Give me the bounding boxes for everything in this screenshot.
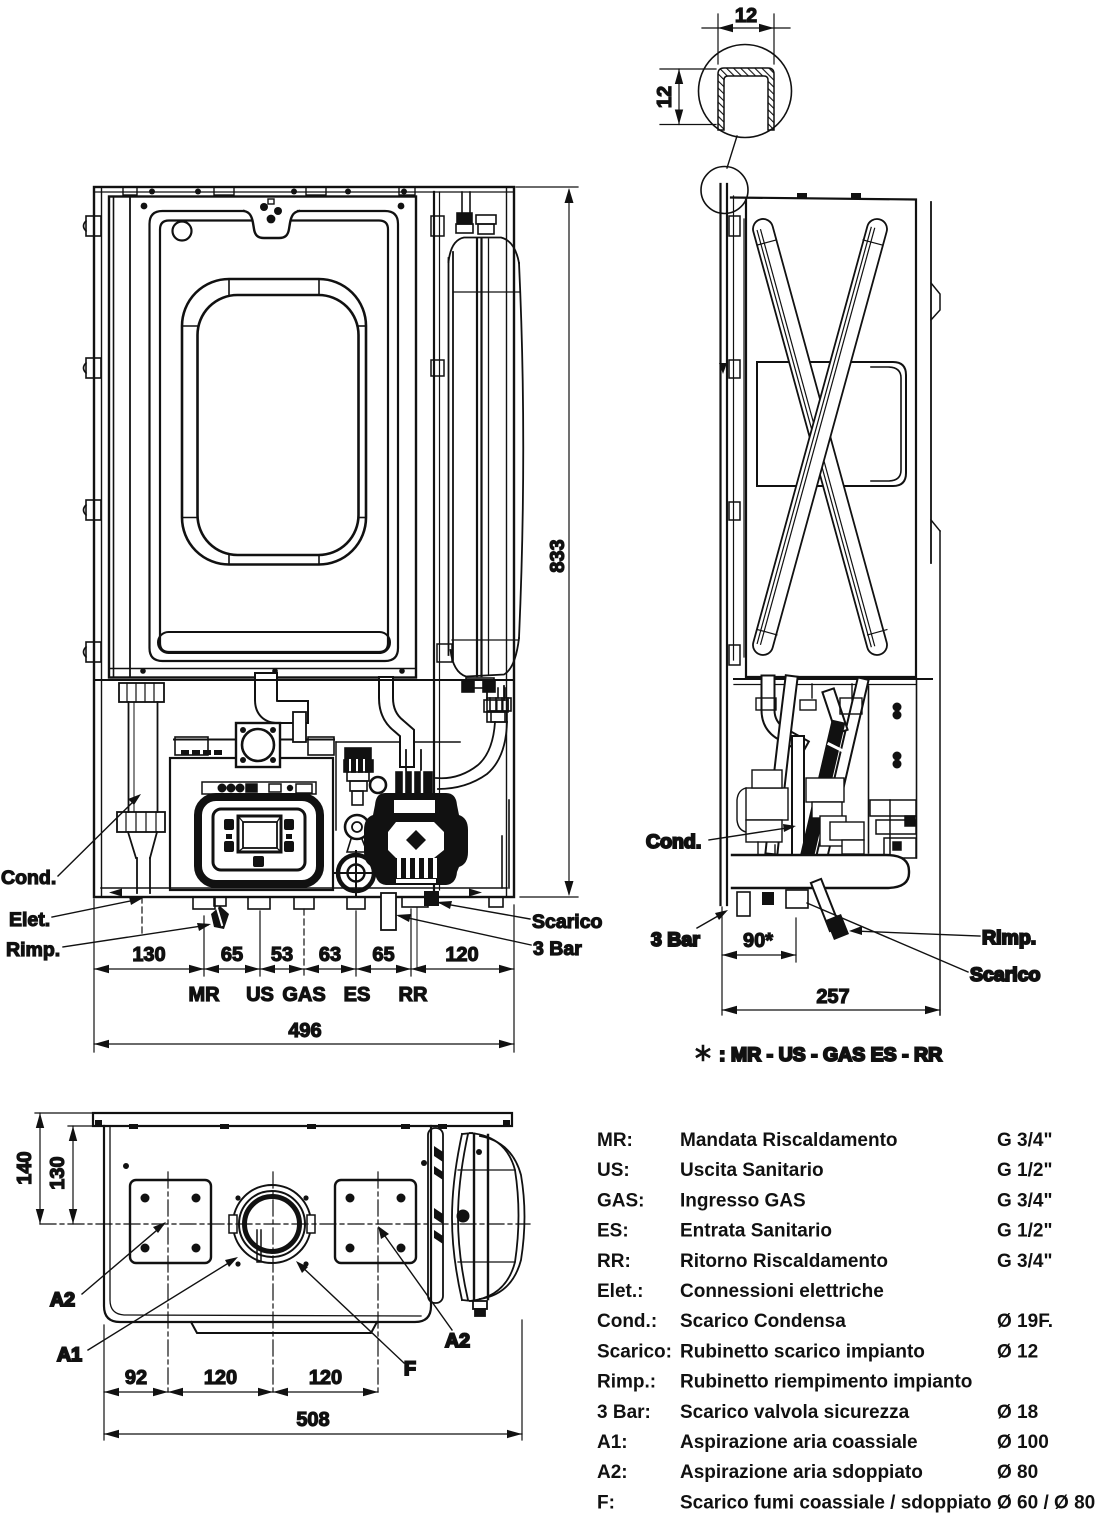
svg-text:257: 257 [816,986,849,1008]
svg-text:Elet.: Elet. [9,909,50,931]
svg-text:G 3/4": G 3/4" [997,1251,1052,1272]
svg-text:Ø 19F.: Ø 19F. [997,1311,1053,1332]
svg-text:A2: A2 [50,1289,75,1311]
svg-text:53: 53 [271,944,293,966]
svg-text:12: 12 [735,5,757,27]
svg-text:MR:: MR: [597,1130,633,1151]
svg-text:Rubinetto riempimento impianto: Rubinetto riempimento impianto [680,1372,972,1393]
svg-text:Scarico: Scarico [970,964,1041,986]
svg-text:A2: A2 [445,1330,470,1352]
svg-text:120: 120 [445,944,478,966]
svg-text:3 Bar: 3 Bar [651,929,700,951]
svg-text:US:: US: [597,1160,630,1181]
svg-text:G 3/4": G 3/4" [997,1190,1052,1211]
svg-text:Cond.: Cond. [1,867,56,889]
svg-text:Cond.:: Cond.: [597,1311,657,1332]
svg-text:A1:: A1: [597,1432,628,1453]
svg-text:120: 120 [204,1367,237,1389]
svg-text:A1: A1 [57,1344,82,1366]
svg-text:G 1/2": G 1/2" [997,1160,1052,1181]
svg-text:Scarico valvola sicurezza: Scarico valvola sicurezza [680,1402,910,1423]
svg-text:Ø 80: Ø 80 [997,1462,1038,1483]
svg-text:140: 140 [14,1151,36,1184]
svg-text:65: 65 [221,944,243,966]
svg-text:GAS:: GAS: [597,1190,645,1211]
svg-text:Scarico:: Scarico: [597,1341,672,1362]
svg-text:65: 65 [372,944,394,966]
svg-text:508: 508 [296,1409,329,1431]
svg-text:130: 130 [47,1156,69,1189]
svg-text:Ø 18: Ø 18 [997,1402,1038,1423]
svg-text:833: 833 [547,539,569,572]
svg-text:12: 12 [654,86,676,108]
svg-text:3 Bar:: 3 Bar: [597,1402,651,1423]
svg-text:Elet.:: Elet.: [597,1281,643,1302]
svg-text:Connessioni elettriche: Connessioni elettriche [680,1281,884,1302]
svg-text:Ritorno Riscaldamento: Ritorno Riscaldamento [680,1251,888,1272]
svg-text:63: 63 [319,944,341,966]
svg-text:MR: MR [188,984,220,1006]
svg-text:Scarico: Scarico [532,911,603,933]
svg-text:Rubinetto scarico impianto: Rubinetto scarico impianto [680,1341,925,1362]
svg-text:Entrata Sanitario: Entrata Sanitario [680,1221,832,1242]
svg-text:Rimp.: Rimp. [6,939,60,961]
svg-text:Scarico fumi coassiale / sdopp: Scarico fumi coassiale / sdoppiato [680,1492,992,1513]
svg-text:F: F [404,1358,416,1380]
svg-text:ES: ES [344,984,371,1006]
svg-text:90*: 90* [743,930,773,952]
svg-text:92: 92 [125,1367,147,1389]
svg-text:496: 496 [288,1020,321,1042]
svg-text:120: 120 [309,1367,342,1389]
svg-text:130: 130 [132,944,165,966]
svg-text:US: US [246,984,274,1006]
svg-text:Uscita Sanitario: Uscita Sanitario [680,1160,824,1181]
svg-text:Rimp.: Rimp. [982,927,1036,949]
svg-text:Ingresso GAS: Ingresso GAS [680,1190,806,1211]
svg-text:Ø 60 / Ø 80: Ø 60 / Ø 80 [997,1492,1095,1513]
svg-text:Ø 12: Ø 12 [997,1341,1038,1362]
svg-text:Aspirazione aria coassiale: Aspirazione aria coassiale [680,1432,918,1453]
svg-text:GAS: GAS [282,984,325,1006]
svg-text:F:: F: [597,1492,615,1513]
svg-text:RR:: RR: [597,1251,631,1272]
svg-text:Aspirazione aria sdoppiato: Aspirazione aria sdoppiato [680,1462,923,1483]
svg-text:Cond.: Cond. [646,831,701,853]
svg-text:Mandata Riscaldamento: Mandata Riscaldamento [680,1130,898,1151]
svg-text:: MR - US - GAS ES - RR: : MR - US - GAS ES - RR [719,1044,942,1066]
svg-text:A2:: A2: [597,1462,628,1483]
svg-text:Scarico Condensa: Scarico Condensa [680,1311,846,1332]
svg-text:G 1/2": G 1/2" [997,1221,1052,1242]
svg-text:RR: RR [399,984,428,1006]
svg-text:3 Bar: 3 Bar [533,938,582,960]
svg-text:G 3/4": G 3/4" [997,1130,1052,1151]
svg-text:ES:: ES: [597,1221,629,1242]
svg-text:Ø 100: Ø 100 [997,1432,1049,1453]
svg-text:Rimp.:: Rimp.: [597,1372,656,1393]
